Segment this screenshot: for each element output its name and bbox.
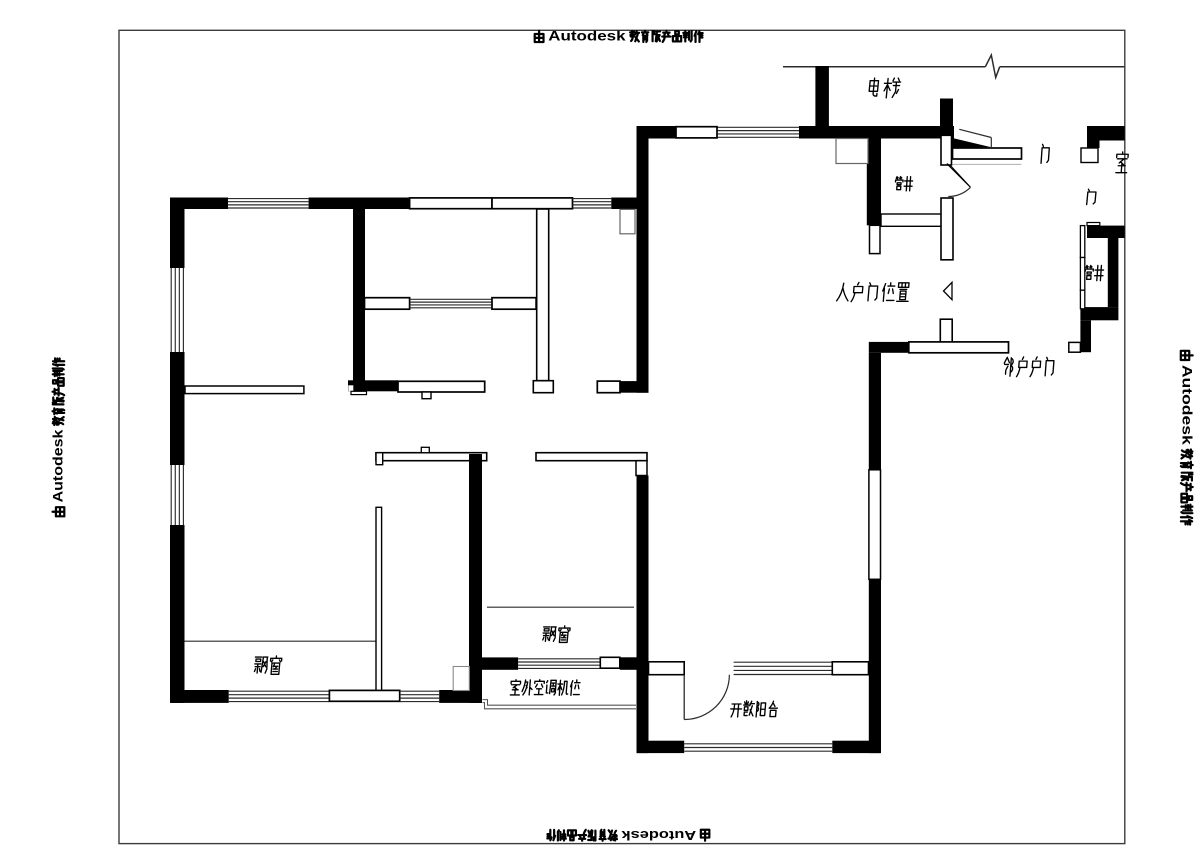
svg-text:Autodesk: Autodesk [621,828,697,843]
svg-text:Autodesk: Autodesk [1179,365,1195,445]
svg-text:Autodesk: Autodesk [548,29,626,44]
svg-text:Autodesk: Autodesk [50,429,66,502]
